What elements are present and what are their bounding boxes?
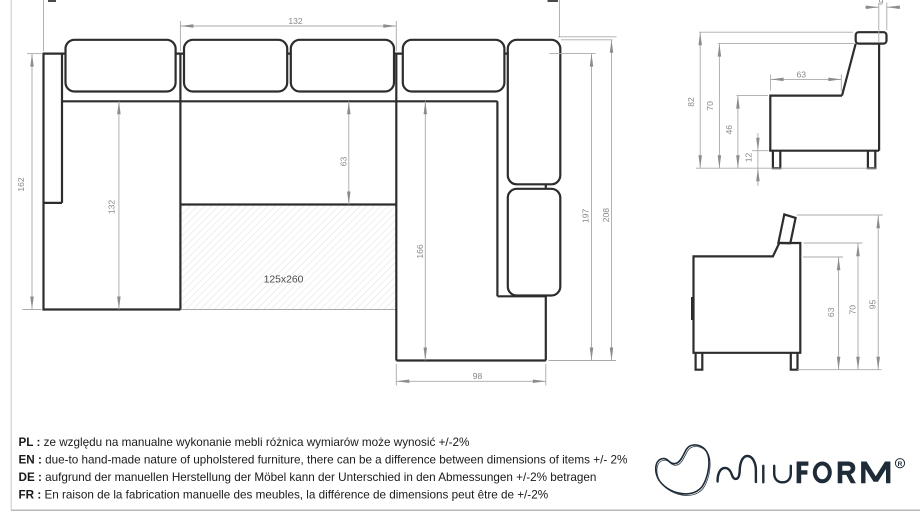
- svg-text:9: 9: [879, 0, 884, 7]
- svg-text:82: 82: [686, 97, 696, 107]
- svg-text:DE : aufgrund der manuellen He: DE : aufgrund der manuellen Herstellung …: [19, 471, 597, 484]
- svg-text:125x260: 125x260: [264, 275, 304, 286]
- svg-text:EN : due-to hand-made nature o: EN : due-to hand-made nature of upholste…: [19, 454, 628, 467]
- svg-text:132: 132: [288, 16, 303, 26]
- svg-text:46: 46: [724, 125, 734, 135]
- svg-text:R: R: [898, 461, 903, 468]
- svg-text:98: 98: [473, 371, 483, 381]
- svg-text:162: 162: [16, 177, 26, 192]
- svg-text:12: 12: [743, 153, 753, 163]
- svg-text:132: 132: [107, 200, 117, 215]
- svg-text:208: 208: [601, 208, 611, 223]
- svg-text:70: 70: [847, 305, 857, 315]
- svg-text:PL : ze względu na manualne wy: PL : ze względu na manualne wykonanie me…: [19, 436, 470, 449]
- svg-text:70: 70: [705, 101, 715, 111]
- svg-text:63: 63: [797, 69, 807, 79]
- svg-text:166: 166: [415, 244, 425, 259]
- svg-text:197: 197: [581, 209, 591, 224]
- svg-text:95: 95: [868, 300, 878, 310]
- svg-text:63: 63: [338, 157, 348, 167]
- svg-text:FR : En raison de la fabricati: FR : En raison de la fabrication manuell…: [19, 489, 549, 502]
- svg-text:63: 63: [826, 307, 836, 317]
